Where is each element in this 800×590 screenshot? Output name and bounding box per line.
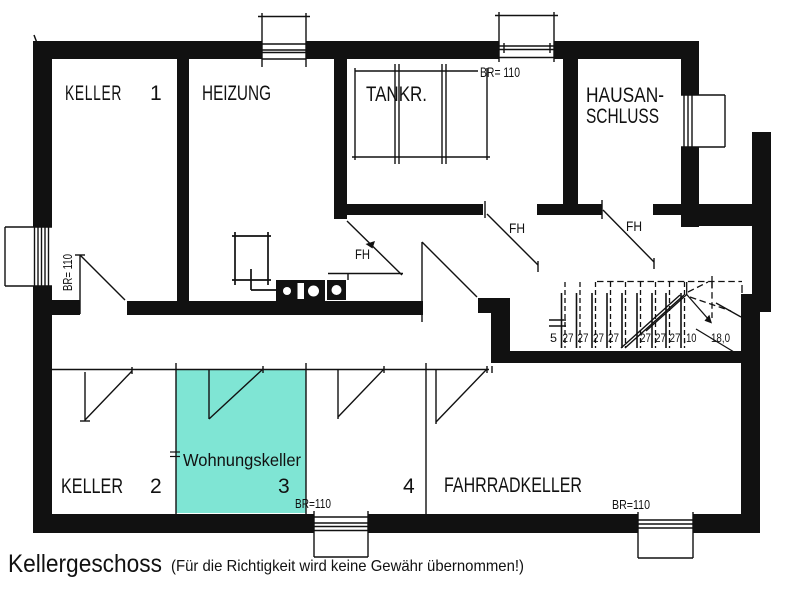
svg-text:27: 27 <box>670 331 681 345</box>
svg-text:TANKR.: TANKR. <box>366 83 427 106</box>
svg-text:27: 27 <box>608 331 619 345</box>
svg-text:BR=110: BR=110 <box>612 497 650 512</box>
svg-text:HEIZUNG: HEIZUNG <box>202 82 271 105</box>
svg-text:4: 4 <box>403 475 415 498</box>
svg-text:27: 27 <box>593 331 604 345</box>
svg-text:KELLER: KELLER <box>61 475 123 498</box>
svg-text:5: 5 <box>550 331 557 345</box>
svg-text:27: 27 <box>578 331 589 345</box>
svg-text:BR= 110: BR= 110 <box>480 64 520 80</box>
svg-text:SCHLUSS: SCHLUSS <box>586 105 659 128</box>
svg-text:BR=110: BR=110 <box>295 496 331 511</box>
svg-text:27: 27 <box>640 331 651 345</box>
svg-text:1: 1 <box>150 82 163 105</box>
svg-text:27: 27 <box>563 331 574 345</box>
svg-text:(Für die Richtigkeit wird kein: (Für die Richtigkeit wird keine Gewähr ü… <box>171 558 524 575</box>
svg-text:BR= 110: BR= 110 <box>60 254 75 291</box>
svg-text:2: 2 <box>150 475 162 498</box>
svg-text:HAUSAN-: HAUSAN- <box>586 84 664 107</box>
svg-text:FH: FH <box>509 221 525 236</box>
svg-text:FH: FH <box>355 247 370 262</box>
svg-text:KELLER: KELLER <box>65 82 122 105</box>
svg-text:Kellergeschoss: Kellergeschoss <box>8 550 162 578</box>
svg-text:Wohnungskeller: Wohnungskeller <box>183 450 301 470</box>
svg-text:FH: FH <box>626 219 642 234</box>
svg-text:3: 3 <box>278 475 290 498</box>
svg-text:FAHRRADKELLER: FAHRRADKELLER <box>444 474 582 497</box>
svg-text:18,0: 18,0 <box>711 331 730 345</box>
svg-text:,10: ,10 <box>684 331 697 345</box>
svg-text:27: 27 <box>655 331 666 345</box>
